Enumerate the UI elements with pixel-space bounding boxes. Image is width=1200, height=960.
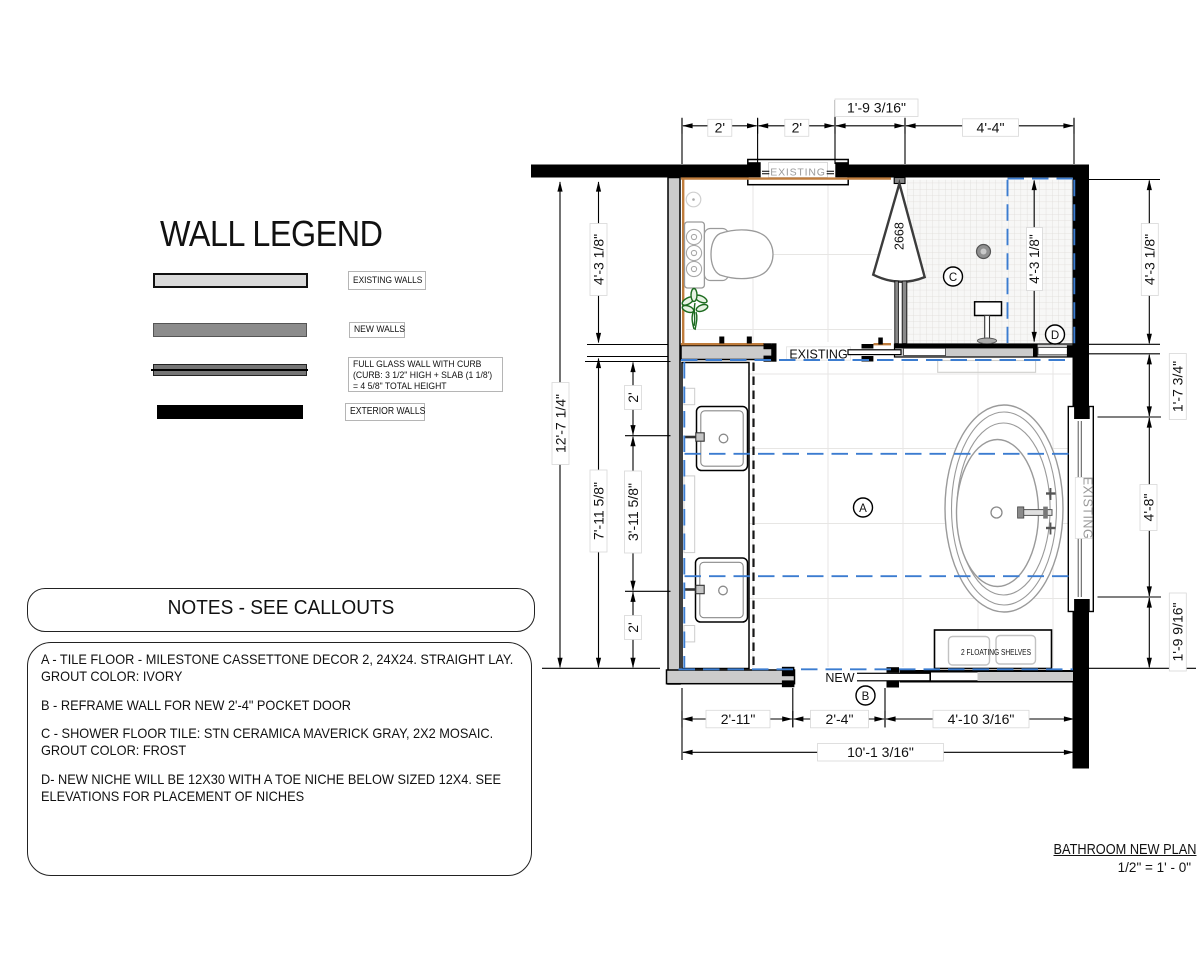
svg-text:D: D [1051, 330, 1059, 342]
svg-text:4'-4": 4'-4" [977, 119, 1005, 135]
svg-text:2 FLOATING SHELVES: 2 FLOATING SHELVES [961, 648, 1031, 657]
svg-text:1'-9 3/16": 1'-9 3/16" [847, 100, 906, 116]
svg-text:A: A [859, 503, 867, 515]
svg-text:2668: 2668 [893, 222, 907, 250]
svg-text:7'-11 5/8": 7'-11 5/8" [590, 482, 606, 540]
svg-text:EXISTING: EXISTING [1081, 477, 1095, 539]
svg-text:1'-9 9/16": 1'-9 9/16" [1170, 602, 1186, 661]
svg-text:4'-8": 4'-8" [1140, 494, 1156, 522]
svg-text:4'-3 1/8": 4'-3 1/8" [1142, 234, 1158, 285]
svg-text:B: B [862, 691, 870, 703]
svg-text:4'-10 3/16": 4'-10 3/16" [948, 711, 1015, 727]
svg-text:1'-7 3/4": 1'-7 3/4" [1170, 361, 1186, 412]
svg-text:NEW: NEW [825, 671, 854, 685]
svg-text:4'-3 1/8": 4'-3 1/8" [590, 234, 606, 285]
svg-text:2': 2' [625, 622, 641, 632]
svg-text:4'-3 1/8": 4'-3 1/8" [1027, 234, 1042, 284]
svg-text:EXISTING: EXISTING [770, 166, 825, 178]
svg-text:2'-11": 2'-11" [721, 711, 756, 727]
svg-text:2'-4": 2'-4" [826, 711, 854, 727]
svg-text:2': 2' [625, 392, 641, 402]
svg-text:2': 2' [792, 119, 802, 135]
svg-text:10'-1 3/16": 10'-1 3/16" [847, 744, 914, 760]
svg-text:3'-11 5/8": 3'-11 5/8" [625, 483, 641, 541]
svg-text:12'-7 1/4": 12'-7 1/4" [552, 394, 568, 453]
svg-text:2': 2' [715, 119, 725, 135]
svg-text:C: C [949, 272, 957, 284]
